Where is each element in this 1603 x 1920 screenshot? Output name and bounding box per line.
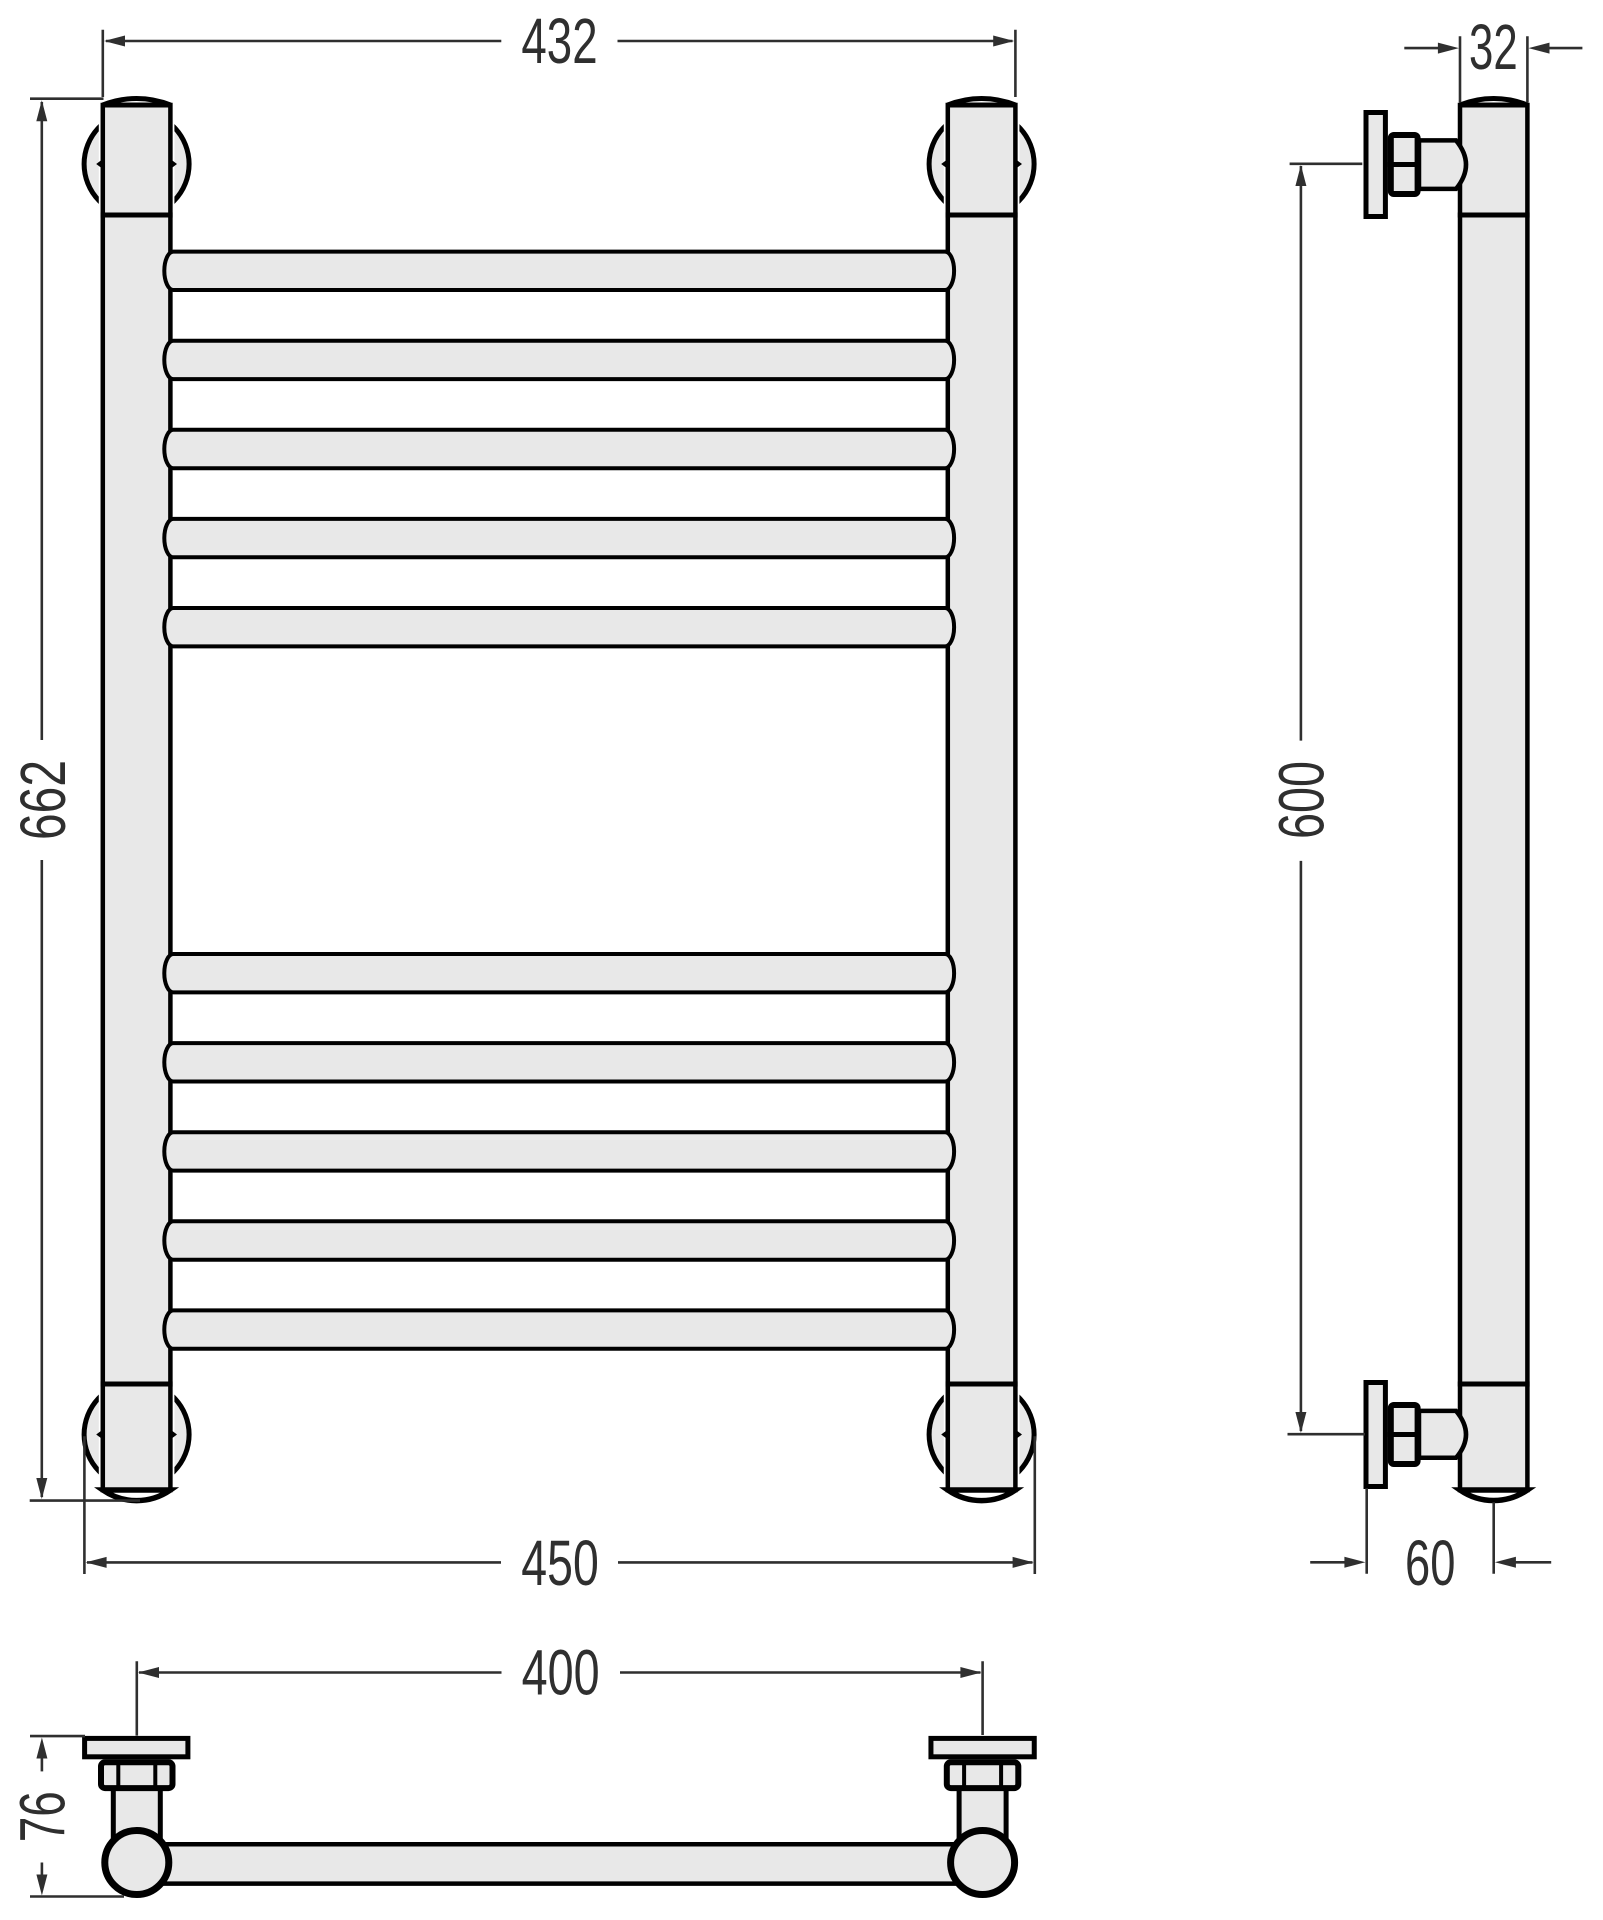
svg-text:32: 32	[1469, 11, 1518, 83]
svg-text:60: 60	[1405, 1527, 1455, 1599]
svg-text:76: 76	[7, 1791, 79, 1842]
svg-text:432: 432	[521, 5, 597, 77]
svg-text:600: 600	[1265, 761, 1337, 839]
svg-text:400: 400	[522, 1636, 600, 1708]
svg-text:450: 450	[521, 1527, 599, 1599]
svg-text:662: 662	[7, 760, 79, 840]
